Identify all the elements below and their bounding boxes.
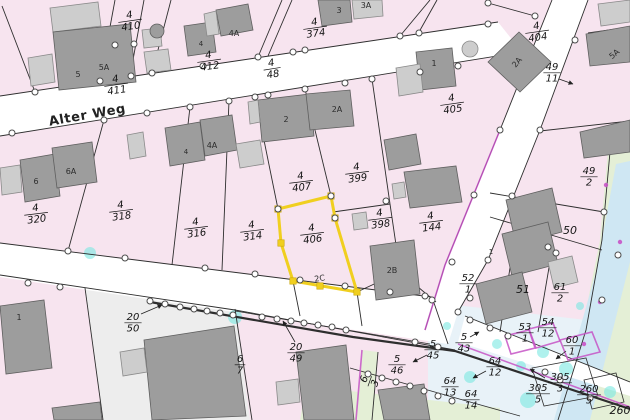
boundary-point [471, 192, 477, 198]
parcel-number-denominator: 316 [187, 227, 207, 240]
boundary-point [202, 265, 208, 271]
boundary-point [467, 317, 473, 323]
building-annex [0, 165, 22, 195]
parcel-number-denominator: 399 [348, 172, 368, 185]
parcel-number-denominator: 14 [465, 401, 478, 412]
parcel-number-numerator: 4 [248, 220, 256, 232]
parcel-number-denominator: 398 [371, 218, 391, 231]
boundary-point [259, 314, 265, 320]
boundary-point [455, 309, 461, 315]
boundary-point [144, 110, 150, 116]
boundary-point [397, 33, 403, 39]
building-number-label: 4 [184, 148, 189, 156]
parcel-number-denominator: 144 [422, 221, 442, 234]
boundary-point [429, 297, 435, 303]
cadastral-map-svg: 4410441244114374440444054484911432043184… [0, 0, 630, 420]
boundary-point [147, 298, 153, 304]
building-number-label: 2C [314, 273, 326, 283]
building-number-label: 5A [99, 63, 110, 72]
building [200, 115, 237, 156]
boundary-point [537, 127, 543, 133]
building-annex [248, 100, 260, 124]
parcel-label-64-12: 6412 [486, 356, 503, 379]
survey-marker-cyan [492, 339, 502, 349]
boundary-point [532, 13, 538, 19]
boundary-point [226, 98, 232, 104]
parcel-number-numerator: 305 [550, 372, 569, 383]
building [318, 0, 352, 26]
building [296, 345, 354, 420]
survey-marker-cyan [443, 322, 451, 330]
boundary-point [485, 21, 491, 27]
boundary-point [122, 255, 128, 261]
boundary-point [342, 80, 348, 86]
building [384, 134, 421, 170]
parcel-number-denominator: 314 [243, 230, 263, 243]
building-number-label: 1 [489, 248, 493, 256]
boundary-point [315, 322, 321, 328]
highlight-vertex-marker [354, 289, 360, 295]
parcel-number-numerator: 64 [465, 389, 478, 400]
parcel-number-denominator: 45 [427, 351, 440, 362]
parcel-number-denominator: 11 [546, 74, 559, 85]
parcel-number-numerator: 49 [546, 62, 559, 73]
building-annex [204, 11, 219, 36]
parcel-number-denominator: 2 [586, 178, 592, 189]
boundary-point [487, 325, 493, 331]
boundary-point [383, 198, 389, 204]
boundary-point [297, 277, 303, 283]
boundary-point [393, 379, 399, 385]
boundary-point [435, 393, 441, 399]
boundary-point [301, 320, 307, 326]
boundary-point [615, 252, 621, 258]
parcel-number-numerator: 53 [519, 322, 532, 333]
boundary-point [449, 398, 455, 404]
boundary-point [416, 30, 422, 36]
boundary-point [542, 369, 548, 375]
parcel-number-numerator: 4 [427, 211, 435, 223]
parcel-number-denominator: 12 [489, 368, 502, 379]
parcel-number-numerator: 60 [566, 335, 579, 346]
building-annex [28, 54, 55, 86]
parcel-number-numerator: 64 [489, 356, 502, 367]
boundary-point [275, 206, 281, 212]
building-annex [392, 182, 406, 199]
parcel-number-denominator: 13 [444, 388, 457, 399]
boundary-point [342, 283, 348, 289]
parcel-number-numerator: 64 [444, 376, 457, 387]
boundary-point [509, 193, 515, 199]
building [404, 166, 462, 208]
parcel-label-54-12: 5412 [539, 317, 556, 340]
parcel-number-denominator: 1 [522, 334, 528, 345]
parcel-number-numerator: 4 [192, 217, 200, 229]
parcel-number-denominator: 3 [557, 384, 563, 395]
violet-boundary-point [604, 183, 608, 187]
building-number-label: 3A [361, 1, 372, 10]
building-number-label: 3 [336, 6, 341, 15]
boundary-point [112, 42, 118, 48]
building [306, 90, 354, 130]
boundary-point [412, 339, 418, 345]
building [53, 24, 136, 90]
building-number-label: 6 [33, 177, 38, 186]
building-annex [598, 0, 630, 26]
parcel-number-numerator: 5 [394, 354, 400, 365]
parcel-number-numerator: 54 [542, 317, 555, 328]
boundary-point [572, 37, 578, 43]
parcel-number-numerator: 4 [117, 200, 125, 212]
boundary-point [302, 86, 308, 92]
boundary-point [65, 248, 71, 254]
boundary-point [449, 259, 455, 265]
parcel-number-numerator: 260 [579, 384, 598, 395]
parcel-number-numerator: 61 [554, 282, 567, 293]
boundary-point [379, 375, 385, 381]
parcel-number-numerator: 4 [376, 208, 384, 220]
boundary-point [329, 324, 335, 330]
boundary-point [252, 94, 258, 100]
violet-boundary-point [582, 342, 586, 346]
boundary-point [128, 73, 134, 79]
boundary-point [417, 69, 423, 75]
building-number-label: 2 [283, 115, 288, 124]
building [144, 326, 246, 420]
parcel-label-50: 50 [563, 224, 577, 237]
parcel-label-64-14: 6414 [462, 389, 479, 412]
building-annex [352, 212, 368, 230]
parcel-label-64-13: 6413 [441, 376, 458, 399]
parcel-number-denominator: 12 [542, 329, 555, 340]
boundary-point [57, 284, 63, 290]
parcel-number-denominator: 49 [290, 354, 303, 365]
building [52, 142, 97, 188]
building-number-label: 4A [207, 141, 218, 150]
parcel-number-denominator: 7 [237, 366, 244, 377]
building-annex [120, 348, 147, 376]
building-number-label: 1 [431, 59, 436, 68]
parcel-number: 260 [610, 404, 630, 417]
parcel-number-denominator: 46 [391, 366, 404, 377]
boundary-point [149, 70, 155, 76]
parcel-number-denominator: 50 [127, 324, 140, 335]
highlight-vertex-marker [278, 240, 284, 246]
boundary-point [177, 304, 183, 310]
boundary-point [230, 312, 236, 318]
boundary-point [32, 89, 38, 95]
parcel-label-260: 260 [610, 404, 630, 417]
boundary-point [265, 92, 271, 98]
parcel-number-numerator: 20 [127, 312, 140, 323]
boundary-point [343, 327, 349, 333]
parcel-number-denominator: 318 [112, 210, 132, 223]
survey-marker-cyan [576, 302, 584, 310]
building-number-label: 4A [229, 29, 240, 38]
parcel-number-denominator: 43 [458, 344, 471, 355]
boundary-point [599, 297, 605, 303]
boundary-point [131, 41, 137, 47]
boundary-point [553, 250, 559, 256]
boundary-point [187, 104, 193, 110]
building-number-label: 6A [66, 167, 77, 176]
parcel-label-51: 51 [516, 283, 530, 296]
building-annex [127, 132, 146, 159]
violet-boundary-point [618, 240, 622, 244]
building-number-label: 5 [75, 70, 80, 79]
boundary-point [365, 371, 371, 377]
parcel-number-numerator: 4 [297, 171, 305, 183]
survey-marker-cyan [520, 392, 536, 408]
boundary-point [290, 49, 296, 55]
boundary-point [505, 333, 511, 339]
boundary-point [288, 318, 294, 324]
boundary-point [191, 306, 197, 312]
highlight-vertex-marker [317, 283, 323, 289]
building-round [150, 24, 164, 38]
parcel-number-numerator: 305 [528, 383, 547, 394]
boundary-point [255, 54, 261, 60]
parcel-label-49-11: 4911 [543, 62, 560, 85]
boundary-point [467, 295, 473, 301]
parcel-number-denominator: 2 [557, 294, 563, 305]
parcel-number-denominator: 1 [465, 285, 471, 296]
boundary-point [332, 215, 338, 221]
parcel-number-numerator: 5 [430, 339, 436, 350]
boundary-point [485, 257, 491, 263]
building-number-label: 2B [387, 266, 398, 275]
boundary-point [387, 289, 393, 295]
parcel-number-denominator: 320 [27, 213, 47, 226]
boundary-point [97, 78, 103, 84]
parcel-number-numerator: 4 [353, 162, 361, 174]
boundary-point [455, 63, 461, 69]
parcel-number-denominator: 406 [303, 233, 323, 246]
boundary-point [9, 130, 15, 136]
boundary-point [302, 47, 308, 53]
building [0, 300, 52, 374]
building-round [462, 41, 478, 57]
boundary-point [545, 244, 551, 250]
boundary-point [407, 383, 413, 389]
parcel-number-denominator: 1 [569, 347, 575, 358]
boundary-point [421, 388, 427, 394]
boundary-point [252, 271, 258, 277]
map-viewport: 4410441244114374440444054484911432043184… [0, 0, 630, 420]
boundary-point [274, 316, 280, 322]
boundary-point [25, 280, 31, 286]
parcel-number-numerator: 5 [461, 332, 467, 343]
building-annex [144, 49, 171, 73]
parcel-label-20-50: 2050 [124, 312, 141, 335]
parcel-number: 50 [563, 224, 577, 237]
boundary-point [485, 0, 491, 6]
parcel-label-20-49: 2049 [287, 342, 304, 365]
parcel-number-numerator: 6 [237, 354, 243, 365]
building-number-label: 2A [332, 105, 343, 114]
parcel-number-denominator: 5 [586, 396, 592, 407]
survey-marker-cyan [84, 247, 96, 259]
building-annex [276, 379, 300, 405]
boundary-point [204, 308, 210, 314]
building-number-label: 4 [199, 40, 204, 48]
boundary-point [369, 76, 375, 82]
building-number-label: 1 [16, 313, 21, 322]
boundary-point [162, 301, 168, 307]
boundary-point [422, 293, 428, 299]
boundary-point [497, 127, 503, 133]
boundary-point [217, 310, 223, 316]
parcel-number-numerator: 20 [290, 342, 303, 353]
parcel-number-numerator: 4 [308, 223, 316, 235]
parcel-number-denominator: 5 [535, 395, 541, 406]
parcel-number: 51 [516, 283, 530, 296]
boundary-point [328, 193, 334, 199]
highlight-vertex-marker [290, 278, 296, 284]
building [165, 122, 205, 166]
parcel-number-numerator: 4 [32, 203, 40, 215]
boundary-point [601, 209, 607, 215]
building-annex [236, 140, 264, 168]
parcel-number-numerator: 52 [462, 273, 475, 284]
parcel-number-denominator: 48 [266, 68, 280, 81]
parcel-number-numerator: 49 [583, 166, 596, 177]
survey-marker-cyan [604, 386, 616, 398]
